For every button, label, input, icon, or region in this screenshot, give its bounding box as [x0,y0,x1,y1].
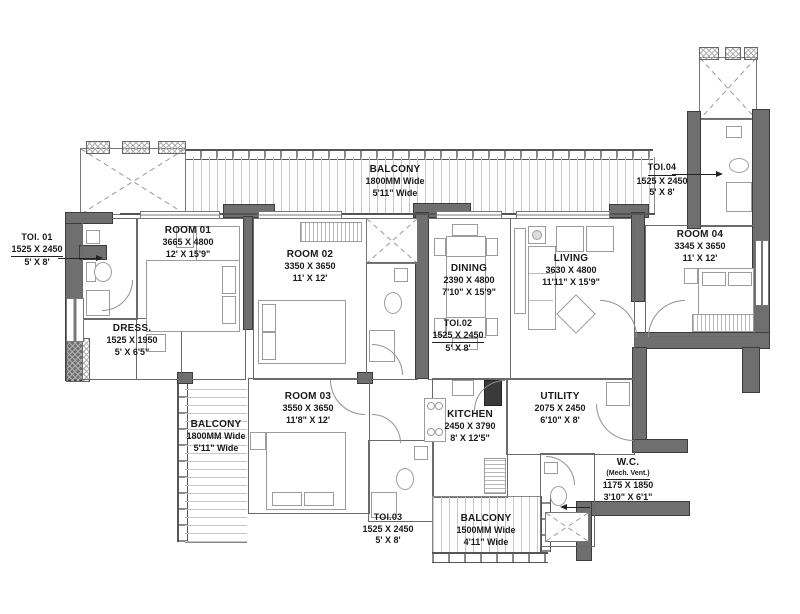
room-dim-ft: 4'11" Wide [436,537,536,549]
window [755,240,769,306]
room-dim-ft: 8' X 12'5" [432,433,508,445]
wall-segment [633,440,687,452]
room-dim-mm: 1525 X 2450 [11,244,62,258]
toi-03-label: TOI.03 1525 X 2450 5' X 8' [350,512,426,547]
duct-shaft-box [699,57,757,120]
room-dim-ft: 5'11" Wide [325,188,465,200]
room-name: TOI.03 [350,512,426,524]
balcony-top-label: BALCONY 1800MM Wide 5'11" Wide [325,163,465,199]
room-dim-mm: 3345 X 3650 [652,241,748,253]
room-dim-ft: 5' X 8' [420,343,496,355]
room-name: TOI. 01 [2,232,72,244]
sink [726,126,742,138]
living-label: LIVING 3630 X 4800 11'11" X 15'9" [514,252,628,288]
room-dim-ft: 5' X 8' [626,187,698,199]
sink [414,446,428,460]
room-dim-ft: 11' X 12' [262,273,358,285]
leader-arrow-icon [96,255,103,261]
shaft-cross-icon [81,149,185,214]
wall-segment [743,348,759,392]
room-name: UTILITY [512,390,608,403]
room-dim-mm: 3630 X 4800 [514,265,628,277]
column-block [158,141,186,154]
room-dim-ft: 3'10" X 6'1" [586,492,670,504]
pillow [222,266,236,294]
leader-line [672,174,718,175]
pillow [222,296,236,324]
wardrobe [300,222,362,242]
toilet [384,292,402,314]
toi-01-label: TOI. 01 1525 X 2450 5' X 8' [2,232,72,269]
toi-04-label: TOI.04 1525 X 2450 5' X 8' [626,162,698,199]
leader-line [58,258,98,259]
wc-label: W.C. (Mech. Vent.) 1175 X 1850 3'10" X 6… [586,456,670,503]
room-04-label: ROOM 04 3345 X 3650 11' X 12' [652,228,748,264]
chair [452,224,478,236]
dining-label: DINING 2390 X 4800 7'10" X 15'9" [430,262,508,298]
armchair [556,226,584,252]
window [258,211,342,219]
armchair [586,226,614,252]
leader-arrow-icon [560,504,567,510]
room-name: DRESS. [86,322,178,335]
column-block [744,47,758,60]
shaft-cross-icon [546,513,588,541]
room-dim-mm: 1500MM Wide [436,525,536,537]
room-name: DINING [430,262,508,275]
room-dim-ft: 11'8" X 12' [258,415,358,427]
utility-label: UTILITY 2075 X 2450 6'10" X 8' [512,390,608,426]
toilet [550,486,567,506]
chair [486,238,498,256]
sofa-cushion-line [529,300,553,301]
kitchen-label: KITCHEN 2450 X 3790 8' X 12'5" [432,408,508,444]
room-dim-mm: 2075 X 2450 [512,403,608,415]
floor-plan: BALCONY 1800MM Wide 5'11" Wide TOI.04 15… [0,0,800,614]
column-block [86,141,110,154]
side-table [250,432,266,450]
duct-shaft-box [80,148,186,215]
room-name: ROOM 03 [258,390,358,403]
room-03-label: ROOM 03 3550 X 3650 11'8" X 12' [258,390,358,426]
shower-tray [726,182,752,212]
room-name: LIVING [514,252,628,265]
room-dim-ft: 5' X 8' [350,535,426,547]
room-name: TOI.02 [420,318,496,330]
room-dim-ft: 5' X 8' [2,257,72,269]
pillow [262,332,276,360]
toilet [729,158,749,173]
washing-machine [606,382,630,406]
dress-label: DRESS. 1525 X 1950 5' X 6'5" [86,322,178,358]
room-dim-mm: 1525 X 2450 [626,176,698,188]
room-name: ROOM 02 [262,248,358,261]
fridge [484,458,506,494]
room-name: ROOM 04 [652,228,748,241]
duct-shaft-box [366,218,418,264]
room-dim-ft: 11' X 12' [652,253,748,265]
room-name: BALCONY [184,418,248,431]
pillow [702,272,726,286]
dining-table [446,236,486,258]
wall-segment [753,110,769,348]
room-dim-mm: 2390 X 4800 [430,275,508,287]
room-02-label: ROOM 02 3350 X 3650 11' X 12' [262,248,358,284]
shaft-cross-icon [367,219,417,263]
pillow [304,492,334,506]
chair [434,238,446,256]
window [516,211,610,219]
leader-line [566,507,590,508]
side-table [684,268,698,284]
pillow [728,272,752,286]
room-name: BALCONY [436,512,536,525]
sink [86,230,100,244]
toilet [396,468,414,490]
room-dim-ft: 5' X 6'5" [86,347,178,359]
window [436,211,502,219]
room-dim-mm: 1525 X 1950 [86,335,178,347]
balcony-bottom-label: BALCONY 1500MM Wide 4'11" Wide [436,512,536,548]
balcony-left-floor [185,384,247,543]
room-dim-mm: 1800MM Wide [184,431,248,443]
room-name: BALCONY [325,163,465,176]
door-arc [372,414,401,443]
room-note: (Mech. Vent.) [606,469,649,480]
room-dim-mm: 2450 X 3790 [432,421,508,433]
column-block [699,47,719,60]
room-name: W.C. [586,456,670,469]
toilet [94,262,112,282]
vent-shaft-box [545,512,589,542]
room-dim-mm: 1800MM Wide [325,176,465,188]
sink [452,380,474,396]
room-dim-mm: 1525 X 2450 [350,524,426,536]
room-name: KITCHEN [432,408,508,421]
column-block [122,141,150,154]
column-block [725,47,741,60]
room-dim-ft: 6'10" X 8' [512,415,608,427]
room-dim-ft: 5'11" Wide [184,443,248,455]
room-dim-ft: 7'10" X 15'9" [430,287,508,299]
room-name: ROOM 01 [138,224,238,237]
lamp [532,230,542,240]
pillow [262,304,276,332]
shaft-cross-icon [700,58,756,119]
balcony-bottom-railing [432,552,548,563]
room-dim-mm: 3550 X 3650 [258,403,358,415]
leader-arrow-icon [716,171,723,177]
window [66,298,84,342]
window [140,211,220,219]
balcony-left-label: BALCONY 1800MM Wide 5'11" Wide [184,418,248,454]
pillow [272,492,302,506]
room-dim-ft: 11'11" X 15'9" [514,277,628,289]
room-dim-mm: 3350 X 3650 [262,261,358,273]
toi-02-label: TOI.02 1525 X 2450 5' X 8' [420,318,496,355]
wardrobe [692,314,754,332]
room-dim-mm: 1175 X 1850 [586,480,670,492]
room-01-label: ROOM 01 3665 X 4800 12' X 15'9" [138,224,238,260]
room-dim-mm: 3665 X 4800 [138,237,238,249]
sink [394,268,408,282]
room-dim-mm: 1525 X 2450 [432,330,483,344]
room-dim-ft: 12' X 15'9" [138,249,238,261]
